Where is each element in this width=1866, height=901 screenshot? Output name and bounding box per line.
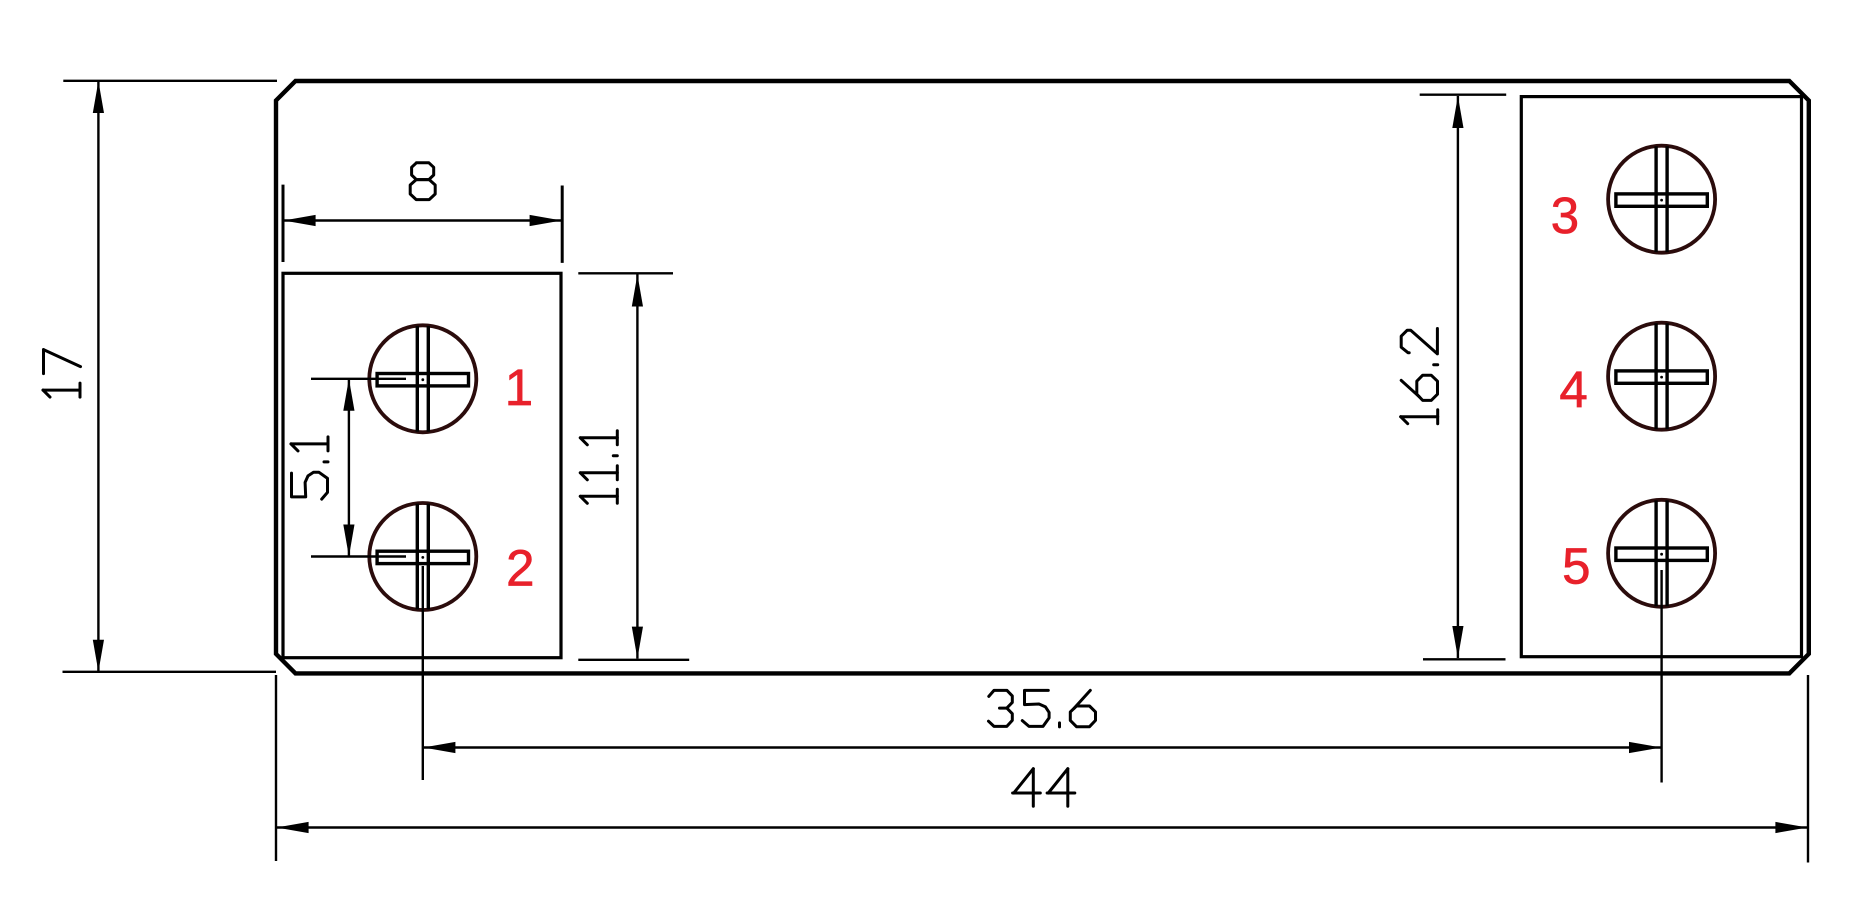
svg-text:1: 1 <box>505 359 533 416</box>
svg-text:5: 5 <box>1562 538 1590 595</box>
svg-text:3: 3 <box>1551 187 1579 244</box>
svg-text:2: 2 <box>506 540 534 597</box>
svg-text:4: 4 <box>1559 361 1587 418</box>
